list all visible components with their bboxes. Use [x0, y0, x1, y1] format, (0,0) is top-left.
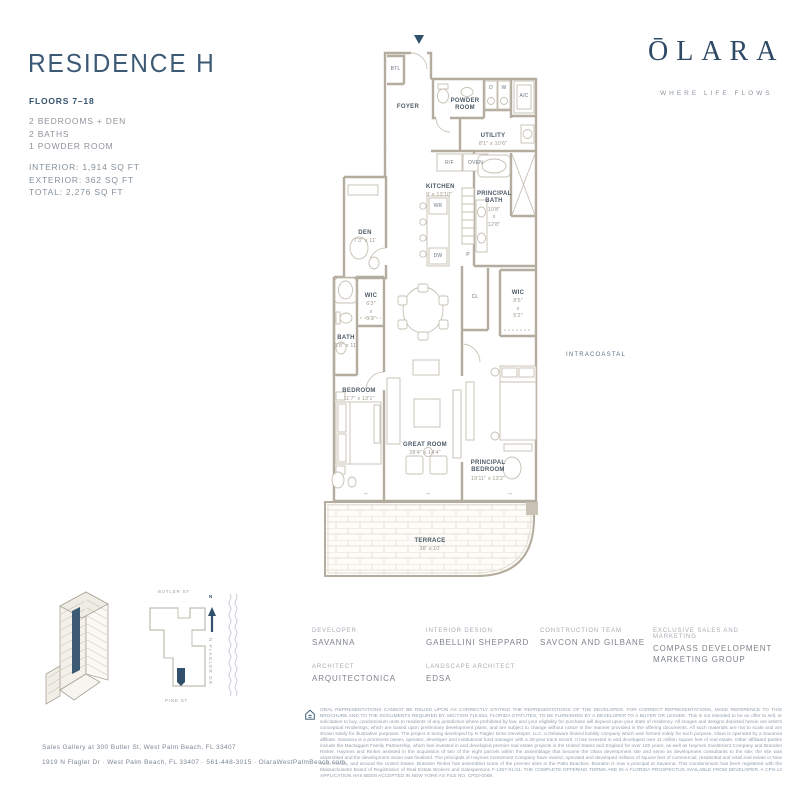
closet-label: CL — [464, 294, 486, 300]
nightstand — [491, 432, 499, 440]
brand-logo: ŌLARA — [648, 36, 784, 68]
oven-label: OVEN — [463, 160, 488, 166]
pouf — [332, 472, 344, 488]
north-label: N — [209, 594, 213, 599]
nightstand — [491, 368, 499, 376]
area-list: INTERIOR: 1,914 SQ FT EXTERIOR: 362 SQ F… — [29, 161, 140, 199]
washer-label: W — [498, 85, 510, 91]
equal-housing-icon — [304, 708, 316, 726]
sales-gallery-address: Sales Gallery at 300 Butler St, West Pal… — [42, 744, 236, 751]
entry-arrow-icon — [414, 35, 424, 44]
legal-disclaimer: ORAL REPRESENTATIONS CANNOT BE RELIED UP… — [320, 708, 782, 780]
building-illustration — [20, 578, 130, 728]
armchair — [406, 456, 423, 474]
keyplan-graphic — [140, 588, 245, 708]
dryer-label: D — [485, 85, 497, 91]
sofa-icon — [413, 360, 439, 375]
media-console — [453, 390, 461, 458]
bed-icon — [500, 366, 536, 440]
credit-developer: DEVELOPER SAVANNA — [312, 628, 357, 648]
brand-tagline: WHERE LIFE FLOWS — [660, 90, 773, 97]
room-label-wic-b: WIC 8'5" x 5'2" — [501, 282, 535, 321]
room-label-principal-bath: PRINCIPAL BATH 10'8" x 12'8" — [477, 183, 511, 229]
highlighted-residence-stack — [72, 607, 80, 674]
floors-label: FLOORS 7–18 — [29, 96, 95, 106]
room-label-bedroom: BEDROOM 11'7" x 13'1" — [335, 380, 383, 404]
area-total: TOTAL: 2,276 SQ FT — [29, 186, 140, 199]
armchair — [430, 456, 447, 474]
sectional-sofa — [387, 378, 400, 444]
tub-icon — [478, 155, 510, 177]
street-label-butler: BUTLER ST — [158, 589, 190, 594]
water-lines-icon — [229, 594, 237, 696]
street-label-flagler: N FLAGLER DR — [208, 638, 213, 685]
credit-architect: ARCHITECT ARQUITECTONICA — [312, 664, 396, 684]
console — [466, 382, 474, 440]
residence-h-brochure-page: { "header": { "title": "RESIDENCE H", "f… — [0, 0, 800, 800]
street-label-pine: PINE ST — [165, 698, 188, 703]
feature-item: 2 BEDROOMS + DEN — [29, 115, 126, 128]
north-arrow-icon — [208, 607, 216, 632]
room-label-btl: BTL — [387, 66, 404, 72]
coffee-table — [414, 399, 440, 427]
room-label-principal-bedroom: PRINCIPAL BEDROOM 19'11" x 13'2" — [466, 452, 510, 483]
slider-arrow-icon: → — [506, 490, 513, 497]
room-label-den: DEN 7'3" x 11' — [344, 222, 386, 246]
toilet-icon — [340, 313, 352, 323]
credit-interior-design: INTERIOR DESIGN GABELLINI SHEPPARD — [426, 628, 529, 648]
room-label-great-room: GREAT ROOM 28'4" x 14'4" — [402, 434, 448, 458]
feature-item: 2 BATHS — [29, 128, 126, 141]
ac-label: A/C — [514, 93, 534, 99]
room-label-foyer: FOYER — [391, 96, 425, 111]
shower-icon — [512, 154, 535, 215]
intracoastal-label: INTRACOASTAL — [558, 352, 634, 358]
feature-item: 1 POWDER ROOM — [29, 140, 126, 153]
dishwasher-label: DW — [429, 253, 447, 259]
area-interior: INTERIOR: 1,914 SQ FT — [29, 161, 140, 174]
credit-sales-marketing: EXCLUSIVE SALES AND MARKETING COMPASS DE… — [653, 628, 778, 665]
room-label-bath: BATH 5'8" x 11' — [334, 327, 358, 351]
den-dresser — [348, 185, 378, 195]
area-exterior: EXTERIOR: 362 SQ FT — [29, 174, 140, 187]
wine-fridge-label: WR — [429, 203, 447, 209]
room-label-wic-a: WIC 6'3" x 5'3" — [358, 285, 384, 324]
slider-arrow-icon: → — [424, 490, 431, 497]
room-label-powder: POWDER ROOM — [447, 90, 483, 113]
contact-line: 1919 N Flagler Dr · West Palm Beach, FL … — [42, 759, 345, 766]
fridge-label: R/F — [437, 160, 462, 166]
credit-construction-team: CONSTRUCTION TEAM SAVCON AND GILBANE — [540, 628, 645, 648]
slider-arrow-icon: ← — [363, 490, 370, 497]
pantry-label: P — [462, 252, 474, 258]
room-label-kitchen: KITCHEN 9' x 13'10" — [426, 176, 476, 200]
bench — [504, 444, 532, 451]
page-title: RESIDENCE H — [28, 48, 216, 79]
room-label-utility: UTILITY 8'1" x 10'6" — [462, 125, 524, 149]
credit-landscape-architect: LANDSCAPE ARCHITECT EDSA — [426, 664, 515, 684]
dining-table-icon — [398, 284, 448, 340]
feature-list: 2 BEDROOMS + DEN 2 BATHS 1 POWDER ROOM — [29, 115, 126, 153]
dresser — [374, 405, 380, 443]
keyplan: BUTLER ST PINE ST N FLAGLER DR N — [140, 588, 245, 708]
room-label-terrace: TERRACE 38' x 10' — [395, 530, 465, 554]
